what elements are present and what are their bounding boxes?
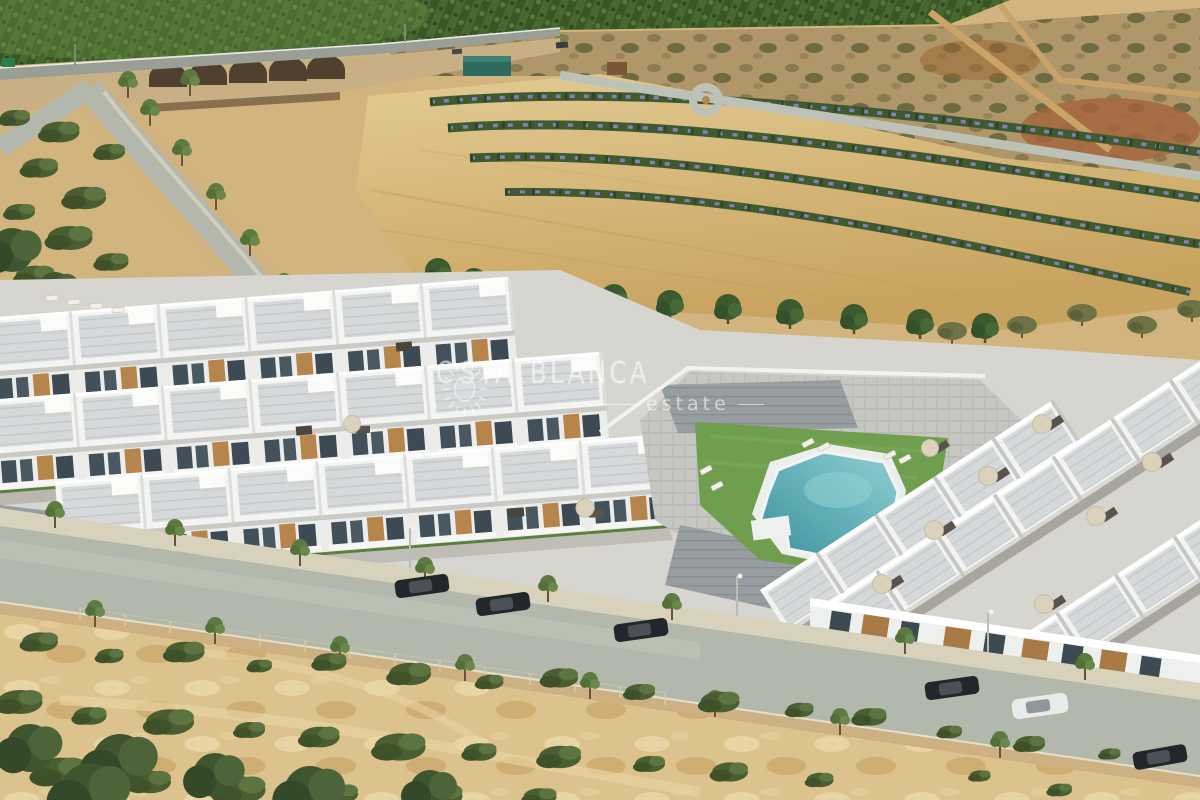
vehicle-on-bridge [556, 41, 568, 48]
ochre-hut [607, 62, 627, 75]
scene-render [0, 0, 1200, 800]
aerial-photo: C STA BLANCA estate [0, 0, 1200, 800]
highway-sign [2, 58, 15, 67]
dark-tiled-deck [660, 380, 858, 433]
vehicle-on-bridge [452, 49, 462, 55]
